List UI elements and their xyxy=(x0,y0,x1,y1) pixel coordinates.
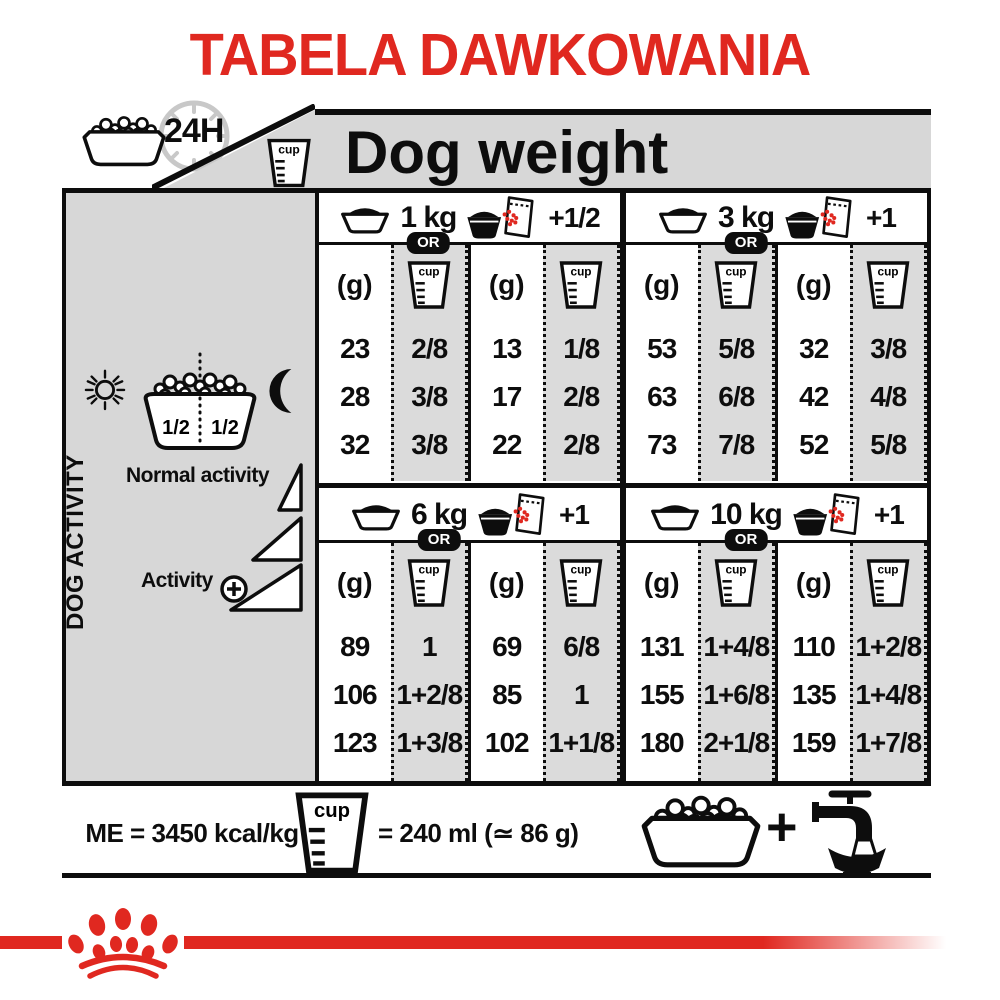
value-cell: 1+2/8 xyxy=(394,671,466,719)
grams-column-dry: (g) 131 155 180 xyxy=(626,543,698,781)
value-cell: 53 xyxy=(626,325,698,373)
value-cell: 2/8 xyxy=(546,421,618,469)
value-cell: 13 xyxy=(471,325,543,373)
section-header-1kg: 1 kg OR +1/2 xyxy=(319,195,620,241)
feeding-guide-page: TABELA DAWKOWANIA 24H Dog weight 1 xyxy=(0,0,1000,1000)
moon-icon xyxy=(268,368,298,414)
or-badge: OR xyxy=(418,529,461,551)
measuring-cup-icon xyxy=(866,260,910,310)
section-values-1kg: (g) 23 28 32 2/8 3/8 3/8 (g) 13 17 22 1/… xyxy=(319,245,620,481)
cup-equivalence-label: = 240 ml (≃ 86 g) xyxy=(378,818,578,849)
value-cell: 1+6/8 xyxy=(701,671,773,719)
value-cell: 22 xyxy=(471,421,543,469)
value-cell: 2/8 xyxy=(394,325,466,373)
activity-label: Activity xyxy=(141,569,213,593)
cup-column-dry: 2/8 3/8 3/8 xyxy=(391,245,469,481)
dry-bowl-icon xyxy=(657,202,709,234)
section-values-6kg: (g) 89 106 123 1 1+2/8 1+3/8 (g) 69 85 1… xyxy=(319,543,620,781)
or-badge: OR xyxy=(725,232,768,254)
value-cell: 7/8 xyxy=(701,421,773,469)
or-badge: OR xyxy=(725,529,768,551)
grams-header: (g) xyxy=(778,543,850,623)
value-cell: 32 xyxy=(319,421,391,469)
weight-label: 1 kg xyxy=(400,201,456,235)
section-values-10kg: (g) 131 155 180 1+4/8 1+6/8 2+1/8 (g) 11… xyxy=(626,543,927,781)
weight-label: 10 kg xyxy=(710,498,782,532)
value-cell: 135 xyxy=(778,671,850,719)
value-cell: 1/8 xyxy=(546,325,618,373)
brand-stripe-right xyxy=(184,936,946,949)
value-cell: 131 xyxy=(626,623,698,671)
dry-bowl-icon xyxy=(649,499,701,531)
value-cell: 155 xyxy=(626,671,698,719)
grams-column-mixed: (g) 69 85 102 xyxy=(471,543,543,781)
value-cell: 123 xyxy=(319,719,391,767)
grams-column-dry: (g) 23 28 32 xyxy=(319,245,391,481)
kibble-bowl-icon xyxy=(634,790,768,870)
measuring-cup-icon xyxy=(407,558,451,608)
brand-crown-logo xyxy=(62,908,184,980)
cup-column-mixed: 1+2/8 1+4/8 1+7/8 xyxy=(850,543,928,781)
cup-column-dry: 1+4/8 1+6/8 2+1/8 xyxy=(698,543,776,781)
grams-header: (g) xyxy=(319,543,391,623)
dog-activity-axis-label: DOG ACTIVITY xyxy=(62,450,106,635)
value-cell: 1+4/8 xyxy=(701,623,773,671)
section-values-3kg: (g) 53 63 73 5/8 6/8 7/8 (g) 32 42 52 3/… xyxy=(626,245,927,481)
grid-line-top xyxy=(62,188,931,193)
pouch-extra-label: +1 xyxy=(866,202,896,234)
measuring-cup-icon xyxy=(714,260,758,310)
value-cell: 3/8 xyxy=(394,373,466,421)
or-badge: OR xyxy=(407,232,450,254)
grid-line-right xyxy=(927,188,931,786)
value-cell: 159 xyxy=(778,719,850,767)
grams-header: (g) xyxy=(626,245,698,325)
pouch-extra-label: +1 xyxy=(559,499,589,531)
value-cell: 102 xyxy=(471,719,543,767)
cup-column-dry: 5/8 6/8 7/8 xyxy=(698,245,776,481)
dog-weight-header: Dog weight xyxy=(315,109,931,190)
measuring-cup-icon xyxy=(714,558,758,608)
measuring-cup-icon xyxy=(294,791,370,875)
section-header-6kg: 6 kg OR +1 xyxy=(319,492,620,538)
cup-column-mixed: 3/8 4/8 5/8 xyxy=(850,245,928,481)
weight-wrap: 1 kg OR xyxy=(400,201,456,235)
mixed-bowl-pouch-icon xyxy=(476,491,550,539)
mixed-bowl-pouch-icon xyxy=(791,491,865,539)
value-cell: 110 xyxy=(778,623,850,671)
value-cell: 52 xyxy=(778,421,850,469)
weight-wrap: 3 kg OR xyxy=(718,201,774,235)
value-cell: 63 xyxy=(626,373,698,421)
value-cell: 73 xyxy=(626,421,698,469)
value-cell: 17 xyxy=(471,373,543,421)
value-cell: 1+2/8 xyxy=(853,623,925,671)
grid-line-table-bottom xyxy=(62,781,931,786)
dog-weight-label: Dog weight xyxy=(315,118,668,187)
section-header-10kg: 10 kg OR +1 xyxy=(626,492,927,538)
grams-header: (g) xyxy=(778,245,850,325)
value-cell: 85 xyxy=(471,671,543,719)
cup-column-mixed: 6/8 1 1+1/8 xyxy=(543,543,621,781)
value-cell: 5/8 xyxy=(701,325,773,373)
activity-plus-icon xyxy=(219,574,249,604)
value-cell: 23 xyxy=(319,325,391,373)
value-cell: 3/8 xyxy=(394,421,466,469)
value-cell: 106 xyxy=(319,671,391,719)
value-cell: 89 xyxy=(319,623,391,671)
value-cell: 28 xyxy=(319,373,391,421)
weight-wrap: 6 kg OR xyxy=(411,498,467,532)
grams-header: (g) xyxy=(471,543,543,623)
measuring-cup-icon xyxy=(559,260,603,310)
grid-line-table-left xyxy=(315,188,319,786)
weight-label: 3 kg xyxy=(718,201,774,235)
grams-column-dry: (g) 89 106 123 xyxy=(319,543,391,781)
value-cell: 32 xyxy=(778,325,850,373)
value-cell: 5/8 xyxy=(853,421,925,469)
grams-column-mixed: (g) 110 135 159 xyxy=(778,543,850,781)
value-cell: 3/8 xyxy=(853,325,925,373)
me-kcal-label: ME = 3450 kcal/kg xyxy=(82,818,302,849)
value-cell: 69 xyxy=(471,623,543,671)
weight-label: 6 kg xyxy=(411,498,467,532)
value-cell: 1+1/8 xyxy=(546,719,618,767)
pouch-extra-label: +1/2 xyxy=(548,202,599,234)
grid-line-left xyxy=(62,188,66,786)
activity-ramp-medium-icon xyxy=(251,515,303,562)
half-left-label: 1/2 xyxy=(162,417,190,439)
cup-column-mixed: 1/8 2/8 2/8 xyxy=(543,245,621,481)
measuring-cup-icon xyxy=(559,558,603,608)
water-tap-icon xyxy=(810,786,902,878)
mixed-bowl-pouch-icon xyxy=(783,194,857,242)
grams-header: (g) xyxy=(471,245,543,325)
page-title: TABELA DAWKOWANIA xyxy=(0,20,1000,89)
value-cell: 1+3/8 xyxy=(394,719,466,767)
grams-header: (g) xyxy=(319,245,391,325)
value-cell: 1 xyxy=(394,623,466,671)
mixed-bowl-pouch-icon xyxy=(465,194,539,242)
grams-column-dry: (g) 53 63 73 xyxy=(626,245,698,481)
measuring-cup-icon xyxy=(866,558,910,608)
half-half-bowl-icon: 1/2 1/2 xyxy=(130,352,270,456)
dry-bowl-icon xyxy=(339,202,391,234)
value-cell: 42 xyxy=(778,373,850,421)
header-row-line-bottom xyxy=(319,540,931,543)
plus-icon: + xyxy=(766,796,798,858)
half-right-label: 1/2 xyxy=(211,417,239,439)
measuring-cup-icon xyxy=(407,260,451,310)
grams-column-mixed: (g) 32 42 52 xyxy=(778,245,850,481)
grams-column-mixed: (g) 13 17 22 xyxy=(471,245,543,481)
pouch-extra-label: +1 xyxy=(874,499,904,531)
normal-activity-label: Normal activity xyxy=(126,464,269,488)
cup-column-dry: 1 1+2/8 1+3/8 xyxy=(391,543,469,781)
weight-wrap: 10 kg OR xyxy=(710,498,782,532)
value-cell: 6/8 xyxy=(546,623,618,671)
value-cell: 180 xyxy=(626,719,698,767)
value-cell: 2+1/8 xyxy=(701,719,773,767)
grams-header: (g) xyxy=(626,543,698,623)
brand-stripe-left xyxy=(0,936,62,949)
grid-line-section-divider xyxy=(620,188,626,786)
sun-icon xyxy=(84,364,126,414)
section-header-3kg: 3 kg OR +1 xyxy=(626,195,927,241)
dry-bowl-icon xyxy=(350,499,402,531)
value-cell: 1 xyxy=(546,671,618,719)
value-cell: 2/8 xyxy=(546,373,618,421)
grid-line-footer-bottom xyxy=(62,873,931,878)
value-cell: 1+7/8 xyxy=(853,719,925,767)
activity-ramp-small-icon xyxy=(277,462,303,512)
value-cell: 4/8 xyxy=(853,373,925,421)
value-cell: 6/8 xyxy=(701,373,773,421)
value-cell: 1+4/8 xyxy=(853,671,925,719)
measuring-cup-icon xyxy=(266,138,312,188)
